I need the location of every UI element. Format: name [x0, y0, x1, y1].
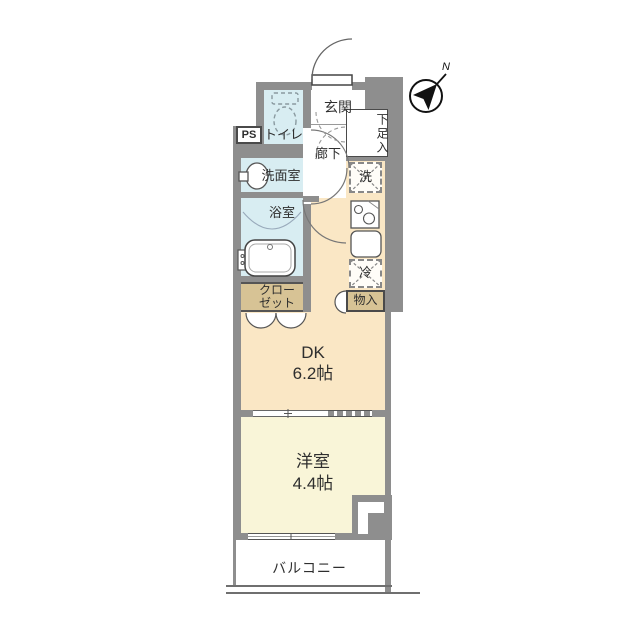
wall	[385, 312, 391, 593]
balcony-edge-line	[226, 585, 392, 587]
wall	[241, 276, 303, 282]
washer-space-box	[349, 162, 382, 193]
pipe-space-box	[236, 126, 262, 144]
wall	[303, 204, 311, 312]
wall	[241, 410, 253, 417]
compass-icon: N	[410, 61, 450, 112]
wall	[303, 90, 311, 128]
compass-north-label: N	[442, 61, 450, 73]
balcony-window-rail	[248, 536, 335, 537]
room-bathroom	[241, 198, 303, 276]
entrance-step-line	[311, 124, 346, 125]
room-hallway	[311, 125, 346, 198]
room-balcony	[236, 540, 383, 586]
wall	[233, 533, 248, 540]
entrance-door	[312, 39, 352, 85]
wall	[352, 82, 365, 90]
wall	[241, 192, 303, 198]
balcony-edge-line	[226, 592, 420, 594]
room-closet	[241, 282, 303, 312]
sliding-door-track	[253, 410, 328, 417]
room-dk-main	[241, 312, 385, 410]
storage-box	[346, 290, 385, 312]
wall	[233, 144, 303, 158]
sliding-door-panel	[328, 410, 372, 417]
room-washroom	[241, 158, 303, 192]
shoe-cabinet-box	[346, 109, 388, 157]
wall	[372, 410, 385, 417]
wall	[256, 82, 312, 90]
floorplan-canvas: N 玄関 廊下 トイレ 洗面室 浴室 下足入 洗 冷 物入 PS クロー ゼット…	[0, 0, 640, 640]
wall	[233, 126, 241, 540]
wall	[303, 196, 319, 202]
wall-notch	[358, 502, 384, 513]
fridge-space-box	[349, 259, 382, 288]
room-toilet	[264, 90, 303, 150]
balcony-side-wall	[233, 540, 236, 586]
